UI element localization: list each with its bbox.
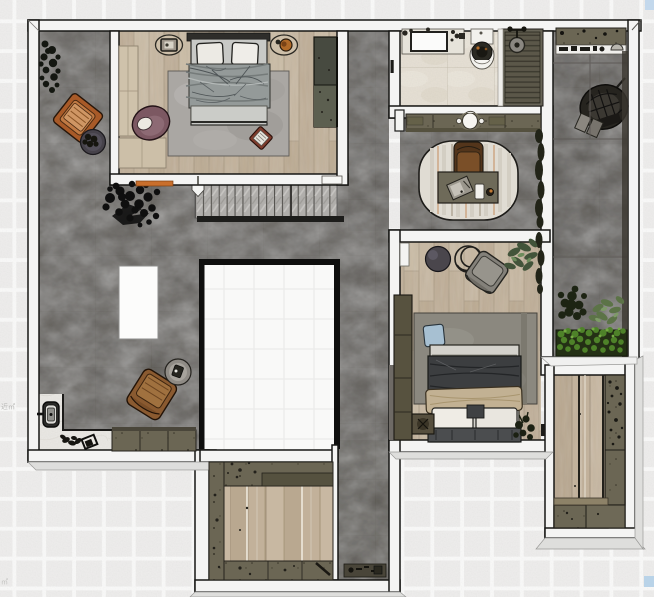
svg-text:近㎡: 近㎡ [1, 402, 15, 411]
svg-text:㎡: ㎡ [1, 578, 8, 586]
